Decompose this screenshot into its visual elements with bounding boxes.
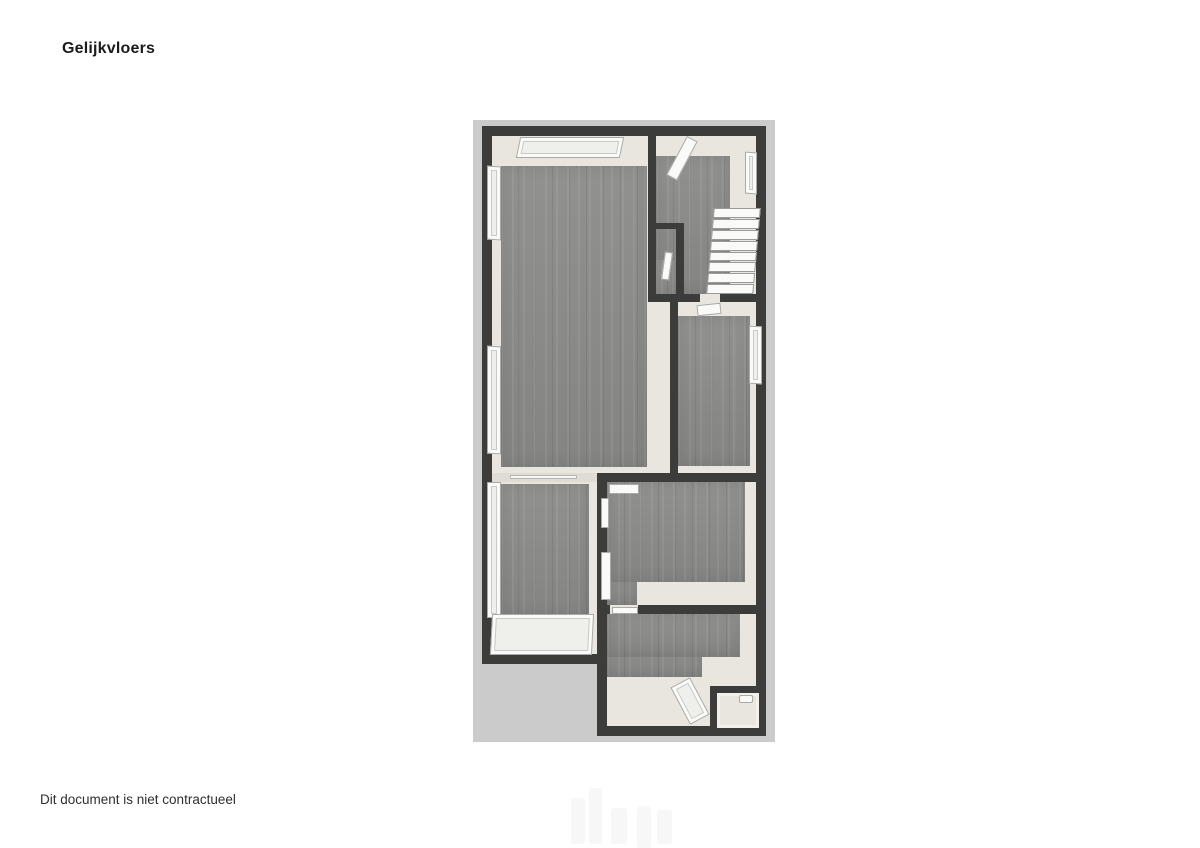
- room-bath-floor-upper: [607, 614, 740, 657]
- stair-tread: [707, 273, 755, 283]
- window-veranda-bottom-large: [490, 614, 594, 655]
- disclaimer-text: Dit document is niet contractueel: [40, 792, 236, 807]
- door-bath-threshold: [612, 607, 638, 614]
- wall-veranda-bottom: [482, 654, 607, 664]
- window-glass: [491, 350, 497, 450]
- window-living-left-lower: [487, 346, 501, 455]
- window-glass: [494, 618, 590, 651]
- window-living-left-upper: [487, 166, 501, 241]
- watermark-glyph: [657, 810, 672, 844]
- floorplan-image: [473, 120, 775, 742]
- stair-tread: [710, 241, 758, 251]
- stairs: [706, 208, 761, 294]
- low-wall-living-veranda: [492, 473, 597, 482]
- room-bath-floor-left: [607, 657, 702, 677]
- door-middle-left-lower: [601, 552, 611, 600]
- wall-bath-top-left: [597, 605, 610, 614]
- faint-logo-watermark: [553, 786, 693, 848]
- stair-tread: [706, 284, 754, 294]
- stair-tread: [709, 252, 757, 262]
- toilet-fixture: [739, 695, 753, 703]
- window-glass: [749, 156, 753, 190]
- wall-under-hall-left: [648, 294, 700, 302]
- sliding-door-track: [510, 475, 577, 479]
- stair-tread: [712, 219, 760, 229]
- stair-tread: [708, 262, 756, 272]
- room-middle-floor-main: [607, 482, 745, 582]
- wall-toilet-left: [710, 686, 717, 736]
- watermark-glyph: [611, 808, 627, 844]
- wall-alcove-right: [676, 223, 684, 302]
- room-mid-right-floor: [678, 316, 750, 466]
- window-midright-right: [749, 326, 762, 385]
- wall-under-hall-right: [720, 294, 766, 302]
- wall-toilet-top: [710, 686, 766, 693]
- stair-tread: [711, 230, 759, 240]
- wall-outer-top: [482, 126, 766, 136]
- stair-tread: [713, 208, 761, 218]
- window-glass: [491, 170, 497, 236]
- window-glass: [491, 486, 497, 614]
- window-glass: [521, 141, 620, 154]
- room-veranda-floor: [501, 484, 589, 616]
- room-middle-floor-step: [607, 582, 637, 605]
- wall-living-hall: [648, 126, 656, 302]
- window-veranda-left: [487, 482, 501, 618]
- wall-living-midright: [670, 302, 678, 473]
- watermark-glyph: [571, 798, 585, 844]
- wall-bath-top-right: [638, 605, 766, 614]
- page-title: Gelijkvloers: [62, 40, 155, 58]
- window-glass: [753, 330, 758, 380]
- window-living-top: [516, 137, 624, 158]
- room-living-floor: [501, 166, 647, 467]
- door-middle-top: [609, 484, 639, 494]
- wall-cross-horizontal: [597, 473, 766, 482]
- window-hall-right: [745, 152, 757, 195]
- door-middle-left-upper: [601, 498, 609, 528]
- watermark-glyph: [637, 806, 651, 848]
- watermark-glyph: [589, 788, 602, 844]
